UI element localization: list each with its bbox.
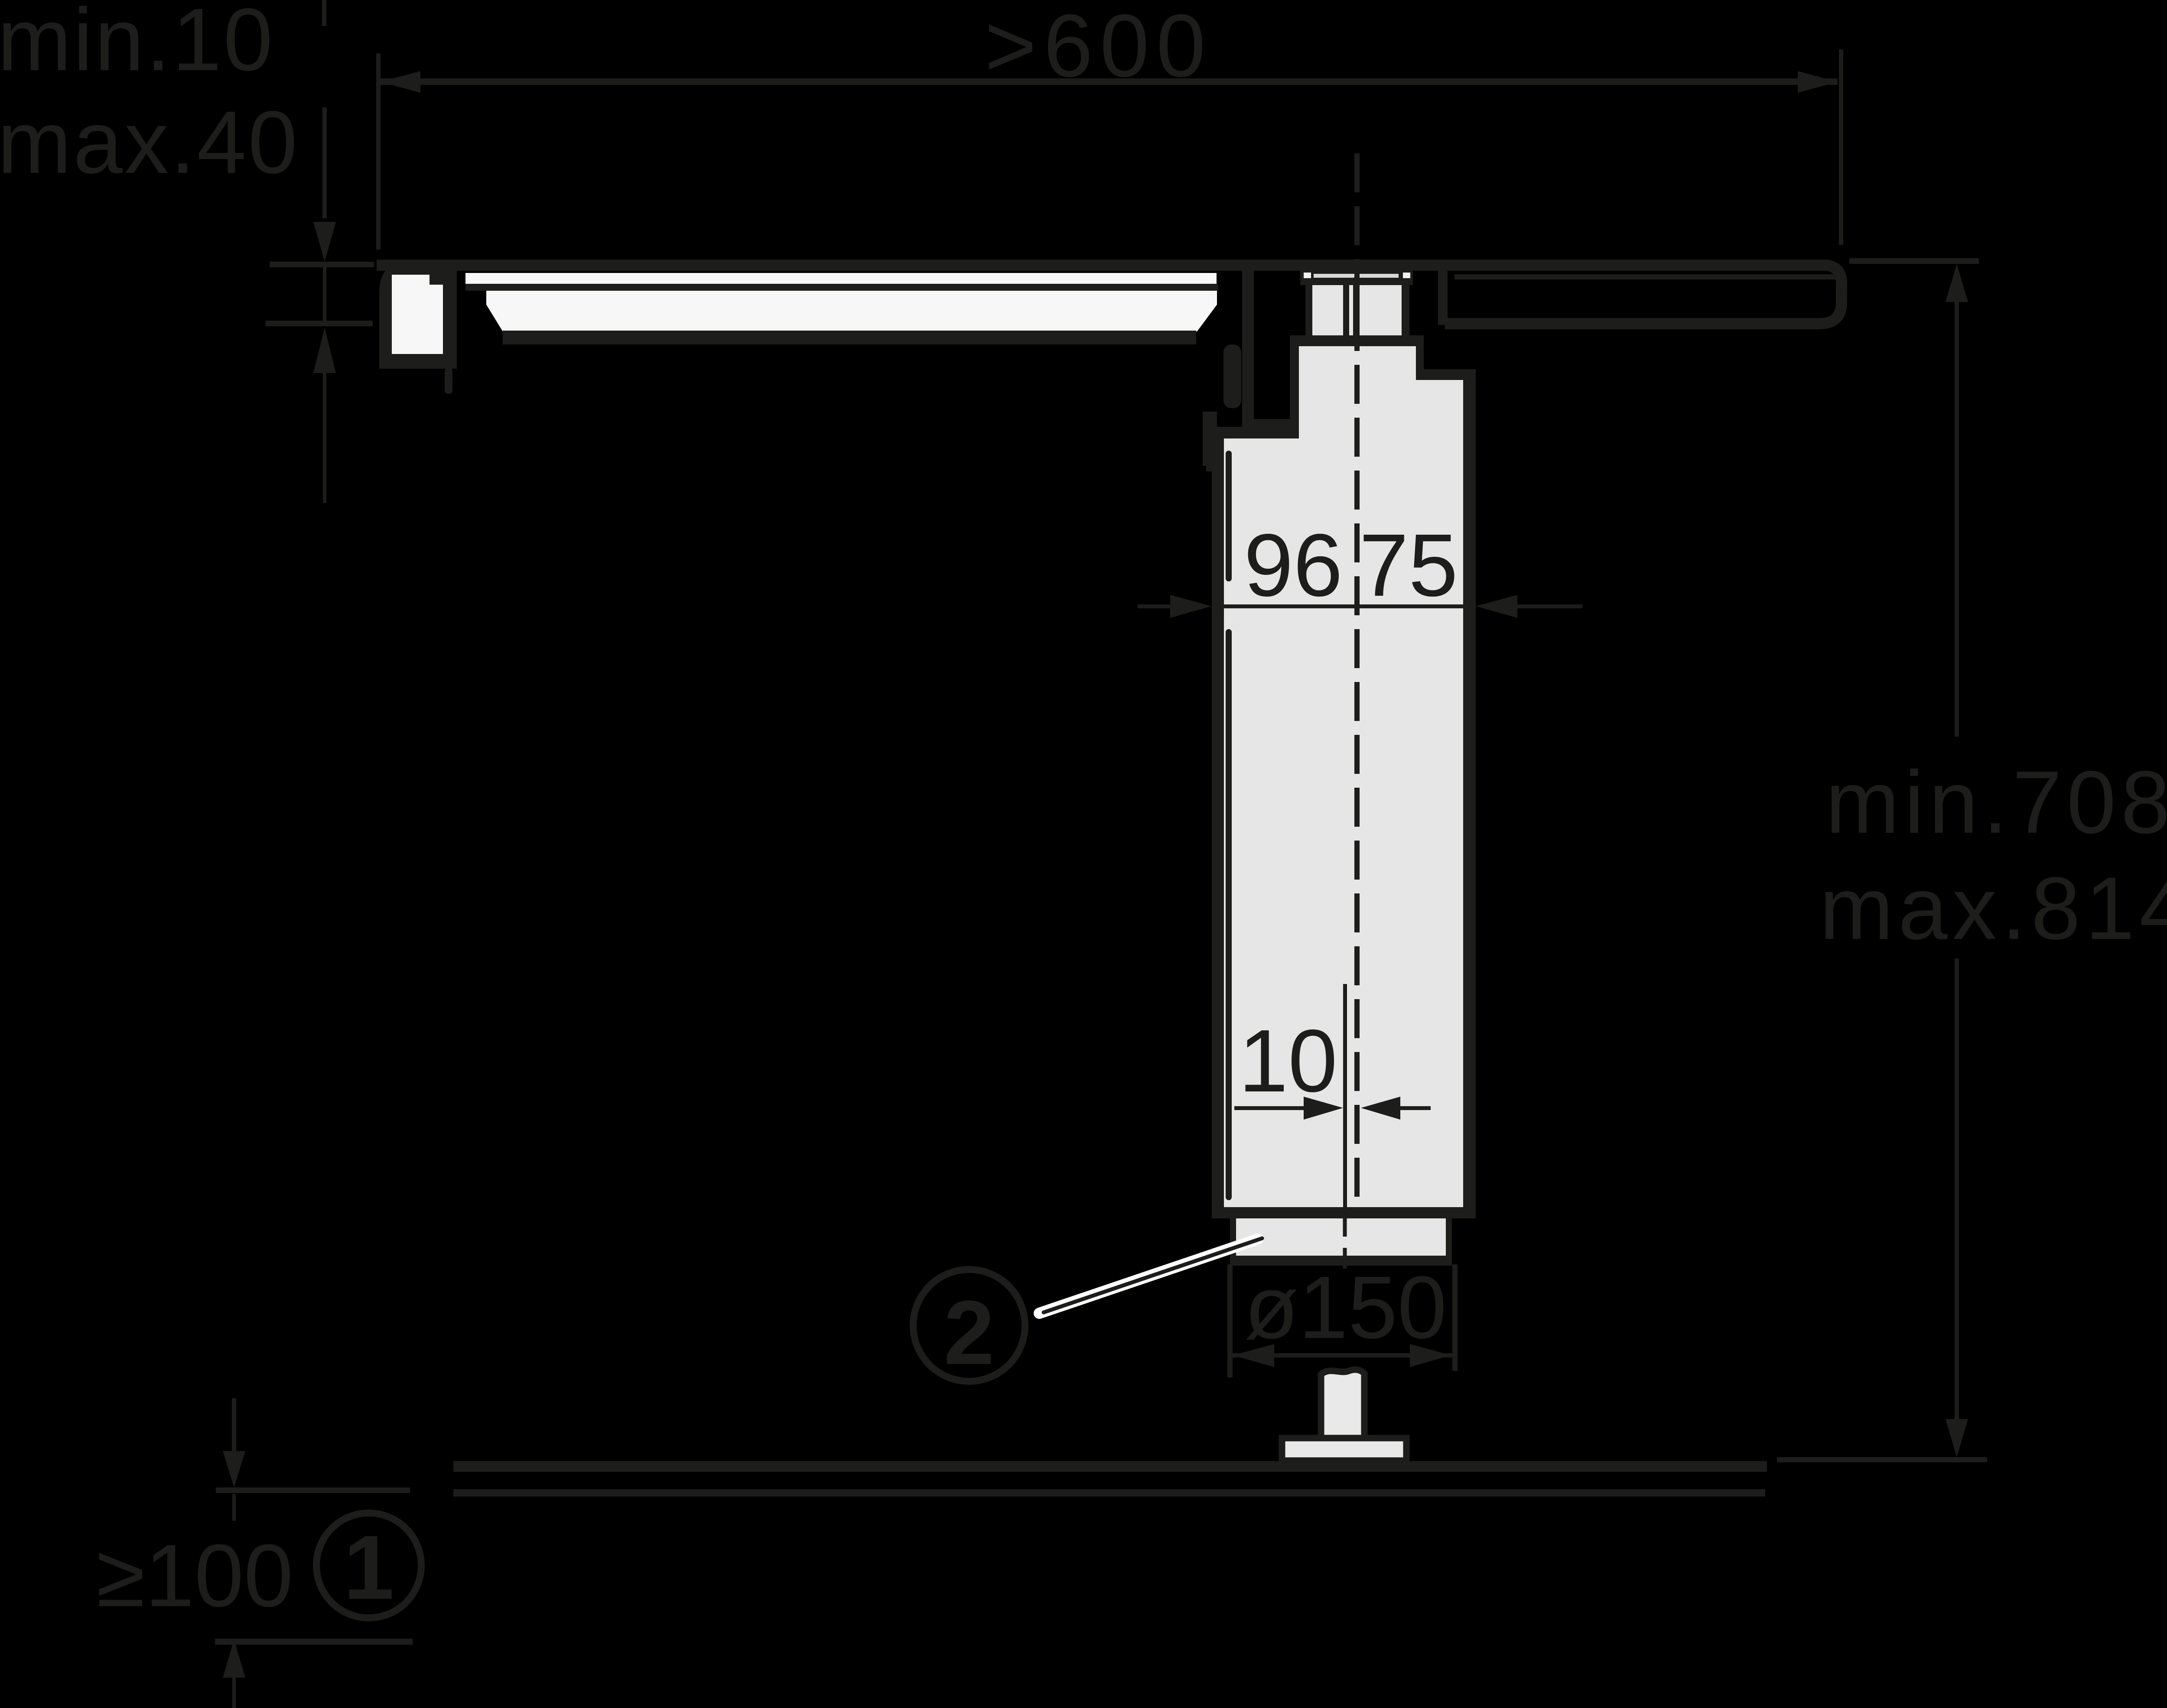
svg-text:min.10: min.10 [0, 0, 274, 89]
svg-text:max.40: max.40 [0, 93, 299, 192]
svg-text:75: 75 [1359, 516, 1458, 615]
svg-text:>600: >600 [985, 0, 1213, 95]
svg-text:ø150: ø150 [1244, 1258, 1447, 1357]
svg-text:2: 2 [944, 1282, 995, 1383]
svg-text:≥100: ≥100 [96, 1526, 293, 1625]
svg-text:1: 1 [344, 1516, 394, 1618]
svg-text:max.814: max.814 [1819, 859, 2167, 958]
svg-text:min.708: min.708 [1825, 753, 2167, 852]
svg-text:10: 10 [1239, 1011, 1337, 1111]
svg-text:96: 96 [1244, 516, 1343, 615]
